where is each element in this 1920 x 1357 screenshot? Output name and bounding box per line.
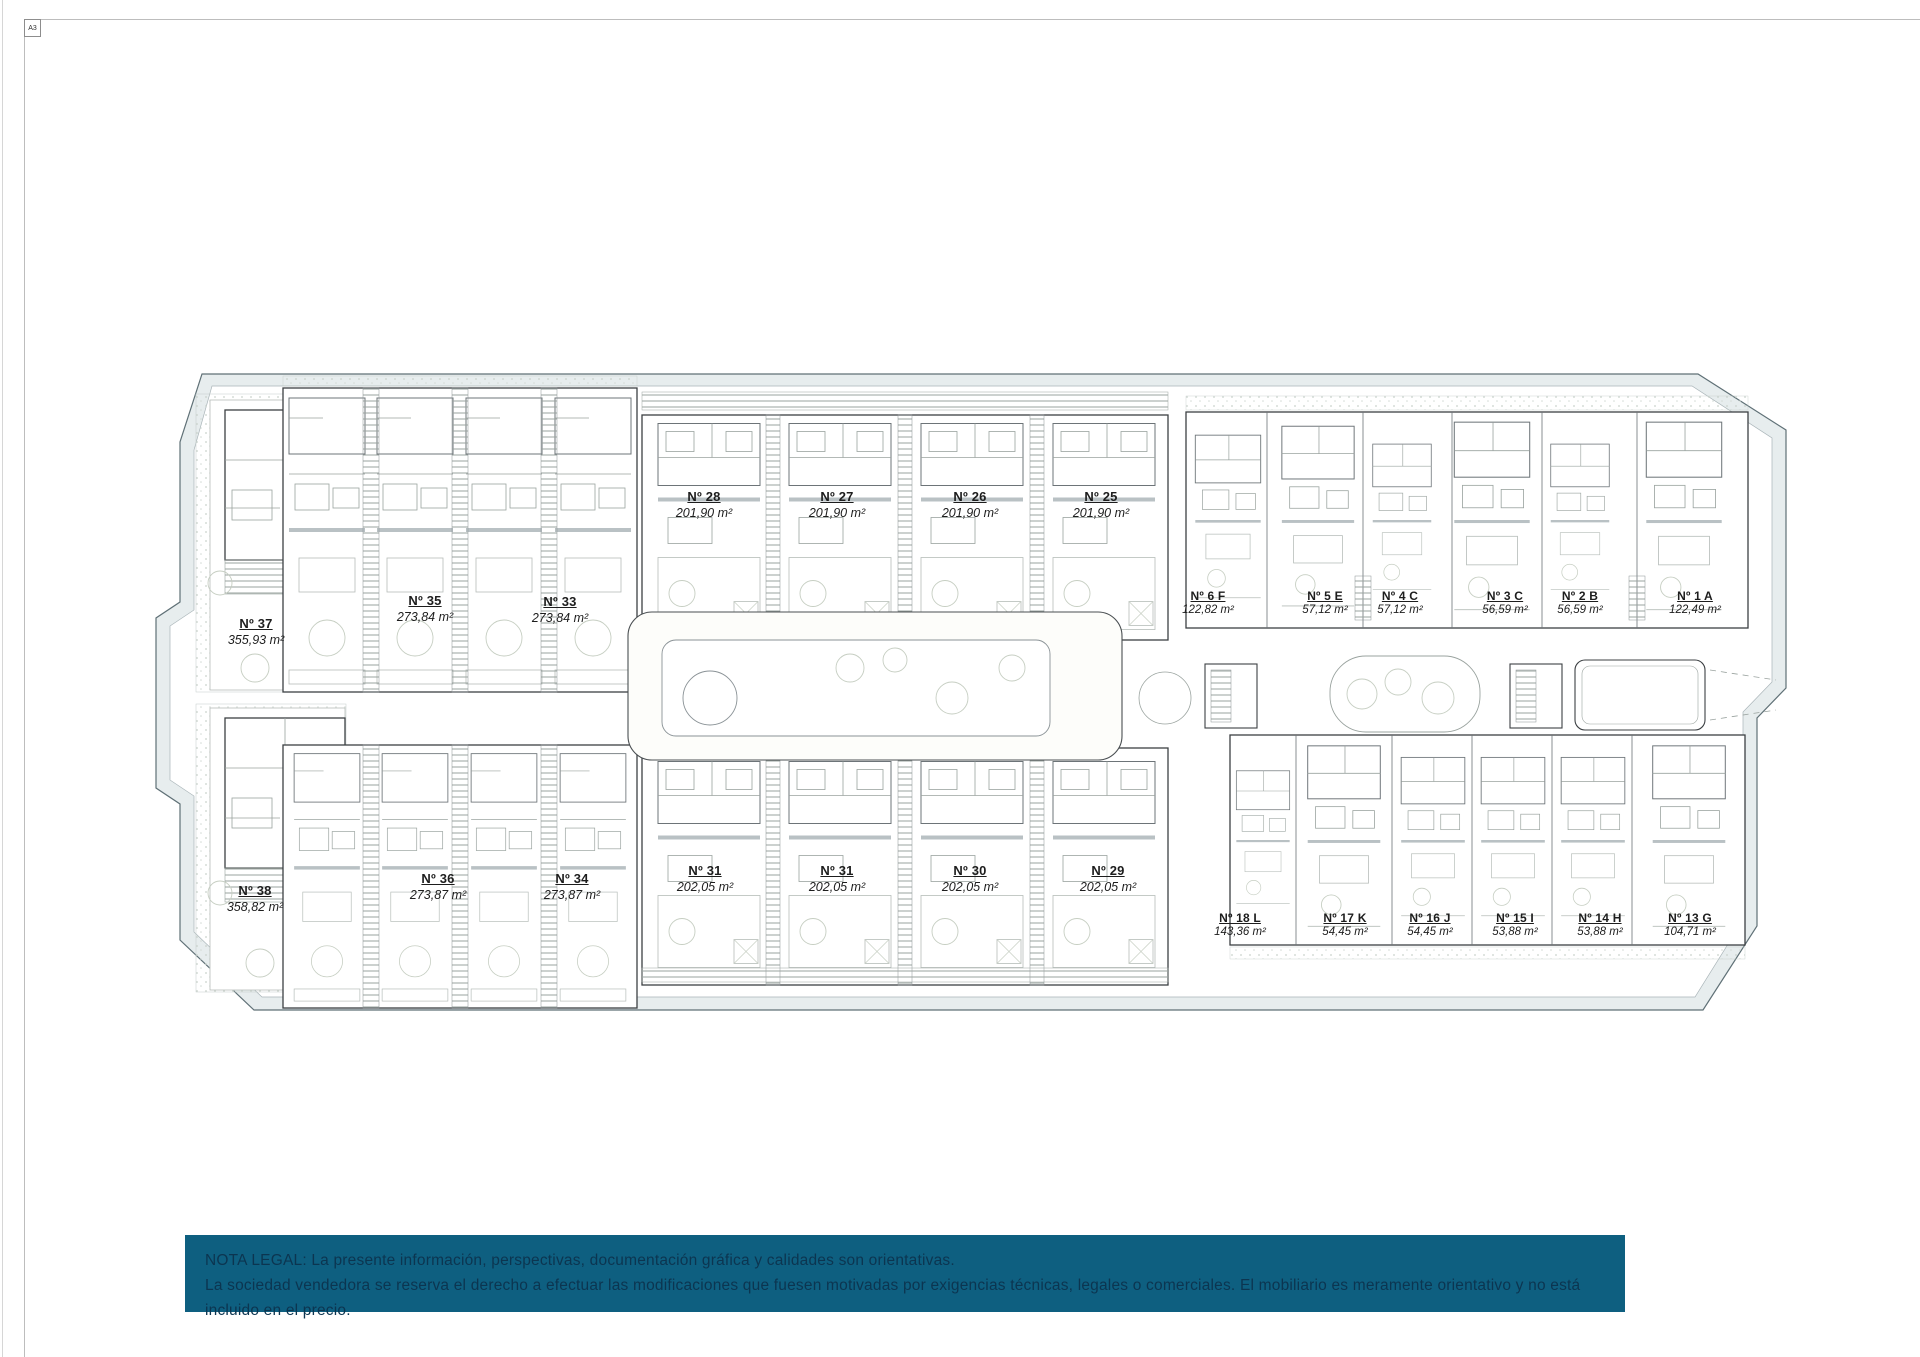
unit-label: Nº 13 G 104,71 m² (1664, 912, 1716, 939)
unit-area: 273,87 m² (410, 888, 466, 902)
unit-area: 143,36 m² (1214, 926, 1266, 939)
unit-number: Nº 17 K (1322, 912, 1367, 925)
unit-number: Nº 14 H (1577, 912, 1622, 925)
unit-number: Nº 33 (532, 595, 588, 610)
unit-number: Nº 25 (1073, 490, 1129, 505)
unit-number: Nº 15 I (1492, 912, 1537, 925)
unit-number: Nº 26 (942, 490, 998, 505)
unit-number: Nº 4 C (1377, 590, 1422, 603)
unit-label: Nº 34 273,87 m² (544, 872, 600, 902)
unit-label: Nº 16 J 54,45 m² (1407, 912, 1452, 939)
unit-number: Nº 3 C (1482, 590, 1527, 603)
unit-area: 57,12 m² (1302, 604, 1347, 617)
unit-label: Nº 5 E 57,12 m² (1302, 590, 1347, 617)
unit-label: Nº 1 A 122,49 m² (1669, 590, 1721, 617)
unit-number: Nº 31 (809, 864, 865, 879)
unit-area: 201,90 m² (942, 506, 998, 520)
unit-label: Nº 3 C 56,59 m² (1482, 590, 1527, 617)
unit-label: Nº 30 202,05 m² (942, 864, 998, 894)
unit-area: 202,05 m² (677, 880, 733, 894)
unit-label: Nº 4 C 57,12 m² (1377, 590, 1422, 617)
unit-label: Nº 28 201,90 m² (676, 490, 732, 520)
sheet-format-label: A3 (28, 25, 37, 32)
legal-note-line-2: La sociedad vendedora se reserva el dere… (205, 1273, 1625, 1323)
unit-area: 358,82 m² (227, 900, 283, 914)
unit-area: 273,84 m² (532, 611, 588, 625)
unit-number: Nº 30 (942, 864, 998, 879)
unit-area: 122,49 m² (1669, 604, 1721, 617)
unit-label: Nº 18 L 143,36 m² (1214, 912, 1266, 939)
unit-area: 57,12 m² (1377, 604, 1422, 617)
unit-area: 202,05 m² (1080, 880, 1136, 894)
unit-label: Nº 29 202,05 m² (1080, 864, 1136, 894)
unit-number: Nº 34 (544, 872, 600, 887)
unit-label: Nº 38 358,82 m² (227, 884, 283, 914)
legal-note-bar: NOTA LEGAL: La presente información, per… (185, 1235, 1625, 1312)
unit-number: Nº 6 F (1182, 590, 1234, 603)
unit-number: Nº 16 J (1407, 912, 1452, 925)
unit-number: Nº 18 L (1214, 912, 1266, 925)
unit-label: Nº 31 202,05 m² (809, 864, 865, 894)
unit-label: Nº 37 355,93 m² (228, 617, 284, 647)
unit-label: Nº 25 201,90 m² (1073, 490, 1129, 520)
unit-label: Nº 2 B 56,59 m² (1557, 590, 1602, 617)
unit-area: 355,93 m² (228, 633, 284, 647)
unit-number: Nº 38 (227, 884, 283, 899)
unit-area: 53,88 m² (1577, 926, 1622, 939)
page-edge-line (2, 0, 3, 1357)
unit-label: Nº 36 273,87 m² (410, 872, 466, 902)
unit-area: 201,90 m² (809, 506, 865, 520)
sheet-format-badge: A3 (24, 19, 41, 37)
unit-number: Nº 2 B (1557, 590, 1602, 603)
unit-area: 202,05 m² (809, 880, 865, 894)
unit-area: 201,90 m² (676, 506, 732, 520)
unit-number: Nº 36 (410, 872, 466, 887)
unit-label: Nº 15 I 53,88 m² (1492, 912, 1537, 939)
unit-number: Nº 13 G (1664, 912, 1716, 925)
unit-area: 273,84 m² (397, 610, 453, 624)
unit-area: 56,59 m² (1482, 604, 1527, 617)
unit-number: Nº 5 E (1302, 590, 1347, 603)
unit-number: Nº 29 (1080, 864, 1136, 879)
drawing-frame-horizontal (40, 19, 1920, 20)
unit-number: Nº 27 (809, 490, 865, 505)
unit-area: 122,82 m² (1182, 604, 1234, 617)
unit-label: Nº 26 201,90 m² (942, 490, 998, 520)
unit-label: Nº 31 202,05 m² (677, 864, 733, 894)
unit-area: 201,90 m² (1073, 506, 1129, 520)
unit-area: 202,05 m² (942, 880, 998, 894)
unit-label: Nº 17 K 54,45 m² (1322, 912, 1367, 939)
unit-number: Nº 37 (228, 617, 284, 632)
unit-area: 56,59 m² (1557, 604, 1602, 617)
unit-number: Nº 1 A (1669, 590, 1721, 603)
unit-label: Nº 33 273,84 m² (532, 595, 588, 625)
unit-label: Nº 6 F 122,82 m² (1182, 590, 1234, 617)
unit-area: 54,45 m² (1322, 926, 1367, 939)
unit-label: Nº 14 H 53,88 m² (1577, 912, 1622, 939)
unit-label: Nº 27 201,90 m² (809, 490, 865, 520)
unit-label: Nº 35 273,84 m² (397, 594, 453, 624)
unit-area: 53,88 m² (1492, 926, 1537, 939)
unit-number: Nº 35 (397, 594, 453, 609)
drawing-frame-vertical (24, 37, 25, 1357)
legal-note-text: NOTA LEGAL: La presente información, per… (205, 1248, 1625, 1323)
unit-area: 54,45 m² (1407, 926, 1452, 939)
unit-number: Nº 31 (677, 864, 733, 879)
legal-note-line-1: NOTA LEGAL: La presente información, per… (205, 1248, 1625, 1273)
floor-plan-drawing (150, 368, 1790, 1018)
unit-number: Nº 28 (676, 490, 732, 505)
unit-area: 104,71 m² (1664, 926, 1716, 939)
unit-area: 273,87 m² (544, 888, 600, 902)
